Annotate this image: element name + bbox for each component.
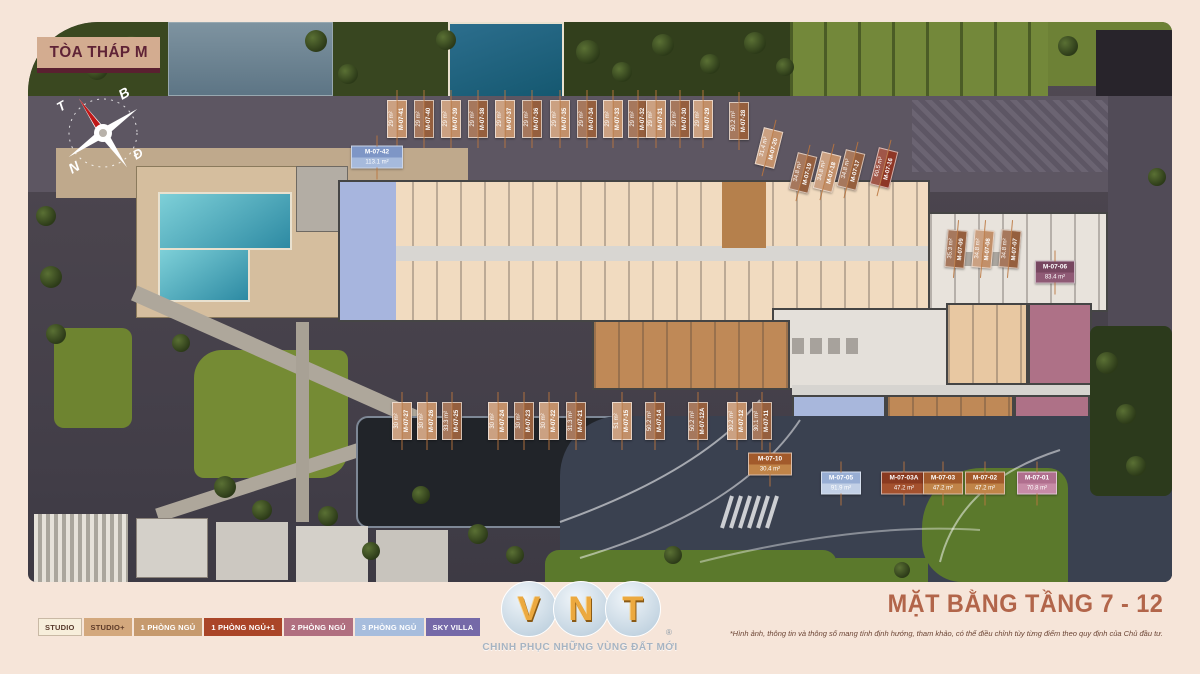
unit-label-M-07-41[interactable]: 29 m²M-07-41: [387, 100, 407, 138]
unit-code: M-07-30: [680, 100, 690, 138]
unit-code: M-07-38: [478, 100, 488, 138]
unit-code: M-07-35: [560, 100, 570, 138]
rotated-text: 30.1 m²M-07-11: [752, 402, 772, 440]
unit-code: M-07-29: [703, 100, 713, 138]
unit-label-M-07-21[interactable]: 31.3 m²M-07-21: [566, 402, 586, 440]
unit-area: 30 m²: [539, 402, 549, 440]
unit-code: M-07-01: [1018, 473, 1056, 484]
unit-code: M-07-21: [576, 402, 586, 440]
unit-area: 29 m²: [468, 100, 478, 138]
rotated-text: 29 m²M-07-30: [670, 100, 690, 138]
unit-area: 29 m²: [387, 100, 397, 138]
plan-title: MẶT BẰNG TẦNG 7 - 12: [887, 590, 1163, 619]
unit-label-M-07-33[interactable]: 29 m²M-07-33: [603, 100, 623, 138]
unit-code: M-07-14: [655, 402, 665, 440]
unit-code: M-07-27: [402, 402, 412, 440]
unit-label-M-07-30[interactable]: 29 m²M-07-30: [670, 100, 690, 138]
unit-area: 30 m²: [417, 402, 427, 440]
vnt-logo: TNV ® CHINH PHỤC NHỮNG VÙNG ĐẤT MỚI: [470, 576, 690, 664]
rotated-text: 50.2 m²M-07-14: [645, 402, 665, 440]
unit-area: 47.2 m²: [924, 484, 962, 494]
rotated-text: 30 m²M-07-22: [539, 402, 559, 440]
rotated-text: 30 m²M-07-23: [514, 402, 534, 440]
rotated-text: 50.2 m²M-07-28: [729, 102, 749, 140]
unit-type-legend: STUDIOSTUDIO+1 PHÒNG NGỦ1 PHÒNG NGỦ+12 P…: [38, 618, 482, 636]
tower-title-underline: [37, 68, 160, 73]
registered-mark: ®: [666, 628, 672, 637]
unit-label-M-07-36[interactable]: 29 m²M-07-36: [522, 100, 542, 138]
unit-area: 29 m²: [603, 100, 613, 138]
unit-code: M-07-10: [749, 454, 791, 465]
unit-label-M-07-03[interactable]: M-07-0347.2 m²: [923, 472, 963, 495]
rotated-text: 29 m²M-07-32: [628, 100, 648, 138]
unit-area: 29 m²: [646, 100, 656, 138]
rotated-text: 29 m²M-07-34: [577, 100, 597, 138]
unit-code: M-07-25: [452, 402, 462, 440]
unit-labels: 29 m²M-07-4129 m²M-07-4029 m²M-07-3929 m…: [0, 0, 1200, 674]
unit-area: 29 m²: [693, 100, 703, 138]
unit-label-M-07-38[interactable]: 29 m²M-07-38: [468, 100, 488, 138]
rotated-text: 29 m²M-07-40: [414, 100, 434, 138]
unit-area: 29 m²: [550, 100, 560, 138]
unit-code: M-07-41: [397, 100, 407, 138]
unit-label-M-07-06[interactable]: M-07-0683.4 m²: [1035, 261, 1075, 284]
unit-area: 29 m²: [628, 100, 638, 138]
rotated-text: 29 m²M-07-39: [441, 100, 461, 138]
unit-label-M-07-03A[interactable]: M-07-03A47.2 m²: [881, 472, 927, 495]
unit-code: M-07-03A: [882, 473, 926, 484]
unit-code: M-07-12A: [698, 402, 708, 440]
rotated-text: 29 m²M-07-37: [495, 100, 515, 138]
rotated-text: 34.8 m²M-07-08: [971, 229, 994, 269]
rotated-text: 30 m²M-07-24: [488, 402, 508, 440]
unit-area: 33.3 m²: [442, 402, 452, 440]
unit-code: M-07-15: [622, 402, 632, 440]
floorplan-page: B T Đ N 29 m²M-07-4129 m²M-07-4029 m²M-0…: [0, 0, 1200, 674]
unit-code: M-07-39: [451, 100, 461, 138]
rotated-text: 35.3 m²M-07-09: [944, 229, 967, 269]
unit-label-M-07-24[interactable]: 30 m²M-07-24: [488, 402, 508, 440]
unit-area: 50.2 m²: [729, 102, 739, 140]
legend-item-1: STUDIO+: [84, 618, 132, 636]
unit-label-M-07-12A[interactable]: 50.2 m²M-07-12A: [688, 402, 708, 440]
rotated-text: 29 m²M-07-29: [693, 100, 713, 138]
unit-label-M-07-10[interactable]: M-07-1030.4 m²: [748, 453, 792, 476]
unit-code: M-07-23: [524, 402, 534, 440]
legend-item-4: 2 PHÒNG NGỦ: [284, 618, 353, 636]
unit-label-M-07-39[interactable]: 29 m²M-07-39: [441, 100, 461, 138]
unit-label-M-07-09[interactable]: 35.3 m²M-07-09: [944, 229, 967, 269]
unit-area: 91.9 m²: [822, 484, 860, 494]
unit-label-M-07-32[interactable]: 29 m²M-07-32: [628, 100, 648, 138]
unit-code: M-07-06: [1036, 262, 1074, 273]
unit-area: 70.8 m²: [1018, 484, 1056, 494]
unit-label-M-07-40[interactable]: 29 m²M-07-40: [414, 100, 434, 138]
unit-area: 30 m²: [392, 402, 402, 440]
rotated-text: 31.3 m²M-07-21: [566, 402, 586, 440]
unit-area: 30 m²: [488, 402, 498, 440]
unit-code: M-07-31: [656, 100, 666, 138]
unit-area: 83.4 m²: [1036, 273, 1074, 283]
unit-code: M-07-09: [954, 230, 967, 269]
rotated-text: 29 m²M-07-38: [468, 100, 488, 138]
logo-circle: V: [501, 581, 557, 637]
rotated-text: 33.3 m²M-07-25: [442, 402, 462, 440]
tower-title-text: TÒA THÁP M: [49, 44, 147, 62]
unit-area: 31.3 m²: [566, 402, 576, 440]
unit-code: M-07-05: [822, 473, 860, 484]
unit-label-M-07-42[interactable]: M-07-42113.1 m²: [351, 146, 403, 169]
unit-code: M-07-22: [549, 402, 559, 440]
unit-area: 113.1 m²: [352, 158, 402, 168]
legend-item-5: 3 PHÒNG NGỦ: [355, 618, 424, 636]
unit-label-M-07-27[interactable]: 30 m²M-07-27: [392, 402, 412, 440]
unit-label-M-07-28[interactable]: 50.2 m²M-07-28: [729, 102, 749, 140]
unit-area: 29 m²: [441, 100, 451, 138]
unit-area: 47.2 m²: [882, 484, 926, 494]
unit-label-M-07-12[interactable]: 30.2 m²M-07-12: [727, 402, 747, 440]
rotated-text: 50.2 m²M-07-12A: [688, 402, 708, 440]
unit-area: 29 m²: [670, 100, 680, 138]
unit-label-M-07-14[interactable]: 50.2 m²M-07-14: [645, 402, 665, 440]
unit-area: 30.2 m²: [727, 402, 737, 440]
unit-code: M-07-42: [352, 147, 402, 158]
unit-label-M-07-22[interactable]: 30 m²M-07-22: [539, 402, 559, 440]
logo-letter: T: [623, 590, 644, 629]
unit-code: M-07-12: [737, 402, 747, 440]
unit-code: M-07-37: [505, 100, 515, 138]
unit-code: M-07-08: [981, 230, 994, 269]
legend-item-3: 1 PHÒNG NGỦ+1: [204, 618, 282, 636]
unit-label-M-07-20[interactable]: 31.4 m²M-07-20: [755, 127, 784, 169]
unit-code: M-07-33: [613, 100, 623, 138]
unit-code: M-07-11: [762, 402, 772, 440]
rotated-text: 30.2 m²M-07-12: [727, 402, 747, 440]
unit-area: 30.1 m²: [752, 402, 762, 440]
unit-label-M-07-08[interactable]: 34.8 m²M-07-08: [971, 229, 994, 269]
unit-label-M-07-35[interactable]: 29 m²M-07-35: [550, 100, 570, 138]
unit-label-M-07-15[interactable]: 51 m²M-07-15: [612, 402, 632, 440]
unit-label-M-07-07[interactable]: 34.8 m²M-07-07: [998, 229, 1021, 269]
unit-area: 51 m²: [612, 402, 622, 440]
tower-title: TÒA THÁP M: [37, 37, 160, 68]
rotated-text: 60.5 m²M-07-16: [870, 147, 899, 189]
disclaimer-text: *Hình ảnh, thông tin và thông số mang tí…: [730, 629, 1163, 638]
unit-label-M-07-05[interactable]: M-07-0591.9 m²: [821, 472, 861, 495]
logo-letter: N: [569, 590, 594, 629]
rotated-text: 31.4 m²M-07-20: [755, 127, 784, 169]
unit-area: 29 m²: [495, 100, 505, 138]
unit-area: 29 m²: [414, 100, 424, 138]
rotated-text: 29 m²M-07-31: [646, 100, 666, 138]
rotated-text: 29 m²M-07-33: [603, 100, 623, 138]
rotated-text: 51 m²M-07-15: [612, 402, 632, 440]
rotated-text: 29 m²M-07-35: [550, 100, 570, 138]
rotated-text: 30 m²M-07-26: [417, 402, 437, 440]
unit-area: 50.2 m²: [645, 402, 655, 440]
unit-code: M-07-03: [924, 473, 962, 484]
unit-area: 50.2 m²: [688, 402, 698, 440]
unit-label-M-07-01[interactable]: M-07-0170.8 m²: [1017, 472, 1057, 495]
unit-code: M-07-02: [966, 473, 1004, 484]
unit-area: 30 m²: [514, 402, 524, 440]
legend-item-0: STUDIO: [38, 618, 82, 636]
unit-label-M-07-29[interactable]: 29 m²M-07-29: [693, 100, 713, 138]
unit-code: M-07-26: [427, 402, 437, 440]
unit-area: 29 m²: [577, 100, 587, 138]
unit-label-M-07-26[interactable]: 30 m²M-07-26: [417, 402, 437, 440]
unit-label-M-07-02[interactable]: M-07-0247.2 m²: [965, 472, 1005, 495]
unit-label-M-07-16[interactable]: 60.5 m²M-07-16: [870, 147, 899, 189]
unit-label-M-07-11[interactable]: 30.1 m²M-07-11: [752, 402, 772, 440]
unit-code: M-07-24: [498, 402, 508, 440]
unit-label-M-07-25[interactable]: 33.3 m²M-07-25: [442, 402, 462, 440]
rotated-text: 29 m²M-07-36: [522, 100, 542, 138]
logo-circle: T: [605, 581, 661, 637]
unit-label-M-07-31[interactable]: 29 m²M-07-31: [646, 100, 666, 138]
legend-item-2: 1 PHÒNG NGỦ: [134, 618, 203, 636]
unit-code: M-07-28: [739, 102, 749, 140]
unit-code: M-07-40: [424, 100, 434, 138]
rotated-text: 29 m²M-07-41: [387, 100, 407, 138]
unit-area: 47.2 m²: [966, 484, 1004, 494]
logo-slogan: CHINH PHỤC NHỮNG VÙNG ĐẤT MỚI: [470, 642, 690, 653]
unit-area: 30.4 m²: [749, 465, 791, 475]
unit-area: 29 m²: [522, 100, 532, 138]
unit-label-M-07-34[interactable]: 29 m²M-07-34: [577, 100, 597, 138]
logo-circle: N: [553, 581, 609, 637]
logo-letter: V: [518, 590, 541, 629]
unit-label-M-07-23[interactable]: 30 m²M-07-23: [514, 402, 534, 440]
unit-label-M-07-37[interactable]: 29 m²M-07-37: [495, 100, 515, 138]
unit-code: M-07-36: [532, 100, 542, 138]
rotated-text: 30 m²M-07-27: [392, 402, 412, 440]
unit-code: M-07-07: [1008, 230, 1021, 269]
unit-code: M-07-34: [587, 100, 597, 138]
rotated-text: 34.8 m²M-07-07: [998, 229, 1021, 269]
